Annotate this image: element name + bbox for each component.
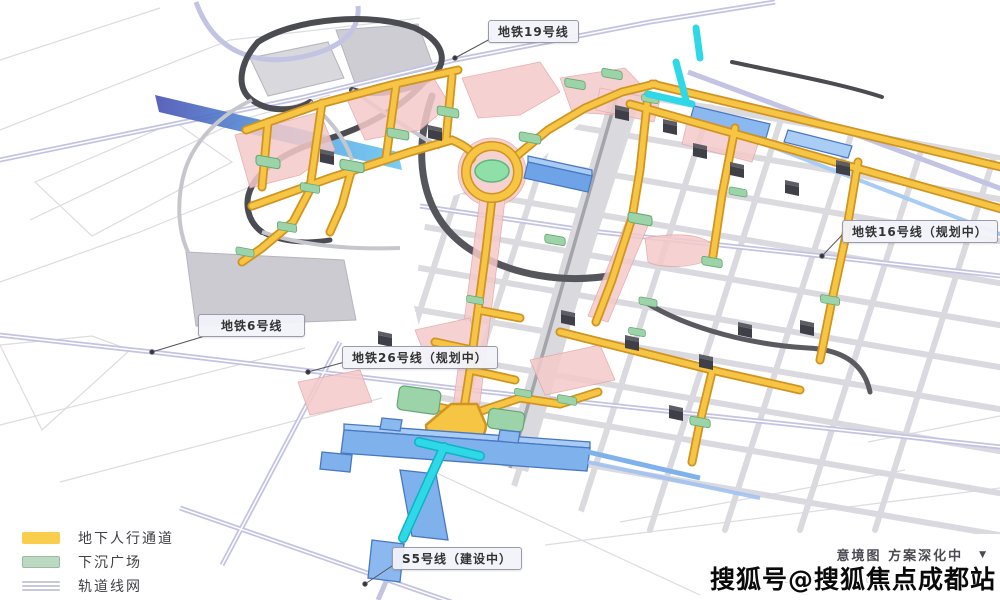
legend: 地下人行通道 下沉广场 轨道线网 [22, 526, 174, 598]
sohu-watermark: 搜狐号@搜狐焦点成都站 [710, 560, 996, 596]
legend-item-pedestrian-corridor: 地下人行通道 [22, 526, 174, 550]
label-metro-line-26: 地铁26号线（规划中） [342, 346, 498, 369]
chevron-down-icon: ▼ [979, 550, 986, 560]
legend-label: 轨道线网 [78, 576, 142, 596]
label-metro-line-19: 地铁19号线 [488, 20, 579, 43]
screenshot-root: 地铁19号线 地铁16号线（规划中） 地铁6号线 地铁26号线（规划中） S5号… [0, 0, 1000, 600]
legend-swatch-plaza [22, 556, 60, 568]
label-s5-line: S5号线（建设中） [392, 547, 522, 570]
label-metro-line-16: 地铁16号线（规划中） [842, 220, 998, 243]
legend-swatch-corridor [22, 532, 60, 544]
label-metro-line-6: 地铁6号线 [198, 314, 305, 337]
legend-label: 地下人行通道 [78, 528, 174, 548]
legend-item-rail-network: 轨道线网 [22, 574, 174, 598]
legend-item-sunken-plaza: 下沉广场 [22, 550, 174, 574]
legend-swatch-rail [22, 581, 60, 591]
master-plan-map [0, 0, 1000, 600]
legend-label: 下沉广场 [78, 552, 142, 572]
